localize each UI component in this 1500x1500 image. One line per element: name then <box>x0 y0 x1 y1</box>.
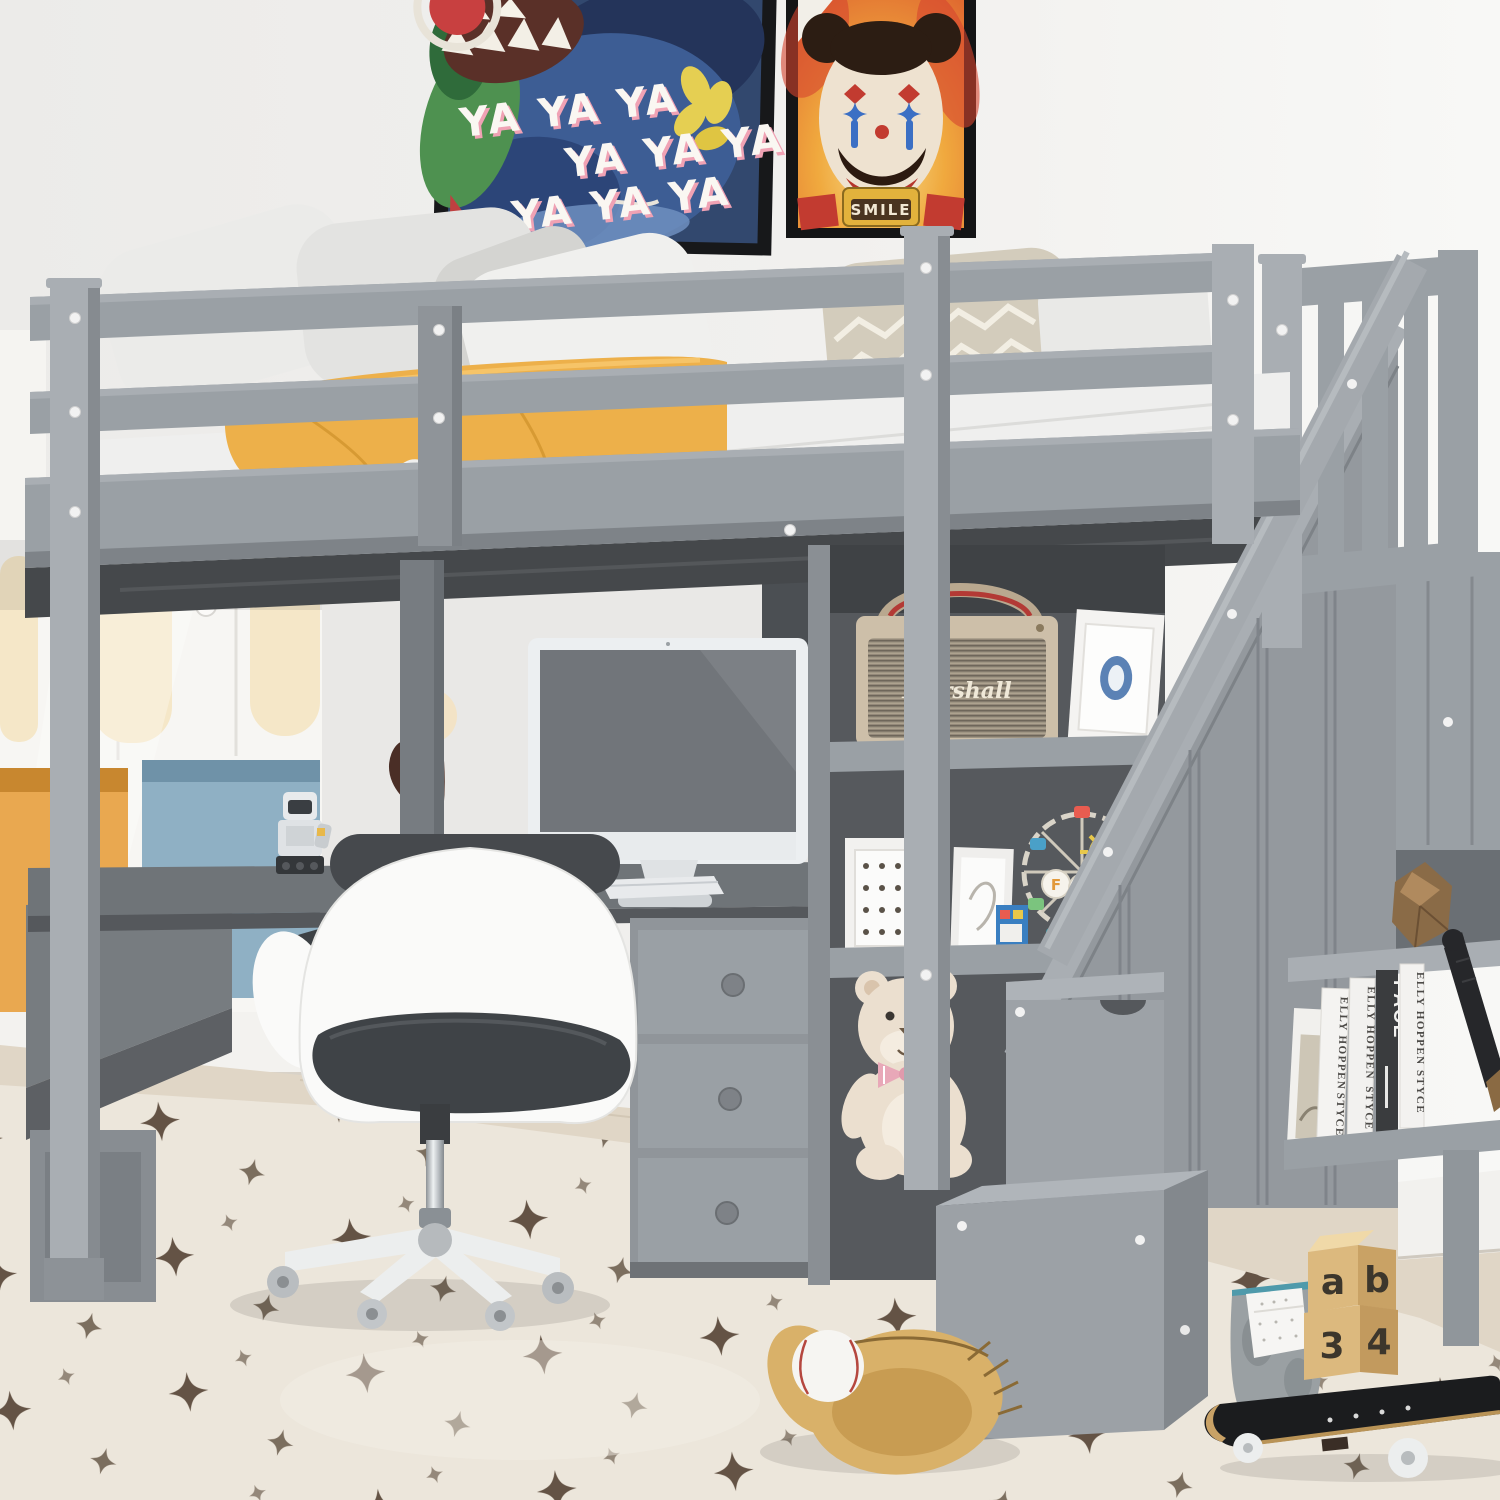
block-number-3: 3 <box>1319 1326 1344 1367</box>
bin-cloth <box>1246 1288 1308 1358</box>
poster-smile-sign-text: SMILE <box>850 201 911 219</box>
book-spine-3: ELLY HOPPEN STYCE <box>1400 964 1426 1128</box>
landing-baluster-3 <box>1404 294 1428 548</box>
scene-canvas: YA YA YA YA YA YA YA YA YA YA YA YA YA Y… <box>0 0 1500 1500</box>
book-spine-2-subtitle: STYCE <box>1362 1086 1375 1130</box>
book-spine-1: ELLY HOPPEN STYCE <box>1317 988 1350 1143</box>
alphabet-blocks: a b 3 4 <box>1304 1230 1398 1380</box>
tower-front-leg <box>1443 1150 1479 1346</box>
block-number-4: 4 <box>1366 1322 1391 1363</box>
block-bottom: 3 4 <box>1304 1305 1398 1380</box>
book-spine-1-subtitle: STYCE <box>1333 1092 1347 1137</box>
block-letter-b: b <box>1364 1260 1390 1301</box>
top-shelf-picture-frame <box>1067 609 1164 751</box>
stair-storage-middle-box <box>1006 972 1164 1190</box>
baseball <box>792 1330 864 1402</box>
chair-cylinder-top <box>420 1104 450 1144</box>
landing-newel-right <box>1438 250 1478 572</box>
drawer-knob-1 <box>722 974 744 996</box>
book-spine-3-subtitle: STYCE <box>1414 1070 1426 1114</box>
book-spine-2: ELLY HOPPEN STYCE <box>1347 978 1377 1140</box>
block-letter-a: a <box>1321 1262 1345 1303</box>
book-spine-2-title: ELLY HOPPEN <box>1363 986 1377 1080</box>
drawer-knob-2 <box>719 1088 741 1110</box>
fun-sign-letter-f: F <box>1051 876 1061 894</box>
chair-gas-lift <box>426 1140 444 1214</box>
book-spine-3-title: ELLY HOPPEN <box>1414 972 1426 1066</box>
bed-post-right-corner <box>1212 244 1254 544</box>
shelf-left-side <box>808 545 830 1285</box>
tower-upper-panel <box>1396 552 1500 852</box>
desk-drawer-unit <box>630 918 832 1278</box>
poster-clown-bear: SMILE <box>768 0 992 238</box>
bedroom-product-photo: YA YA YA YA YA YA YA YA YA YA YA YA YA Y… <box>0 0 1500 1500</box>
drawer-knob-3 <box>716 1202 738 1224</box>
